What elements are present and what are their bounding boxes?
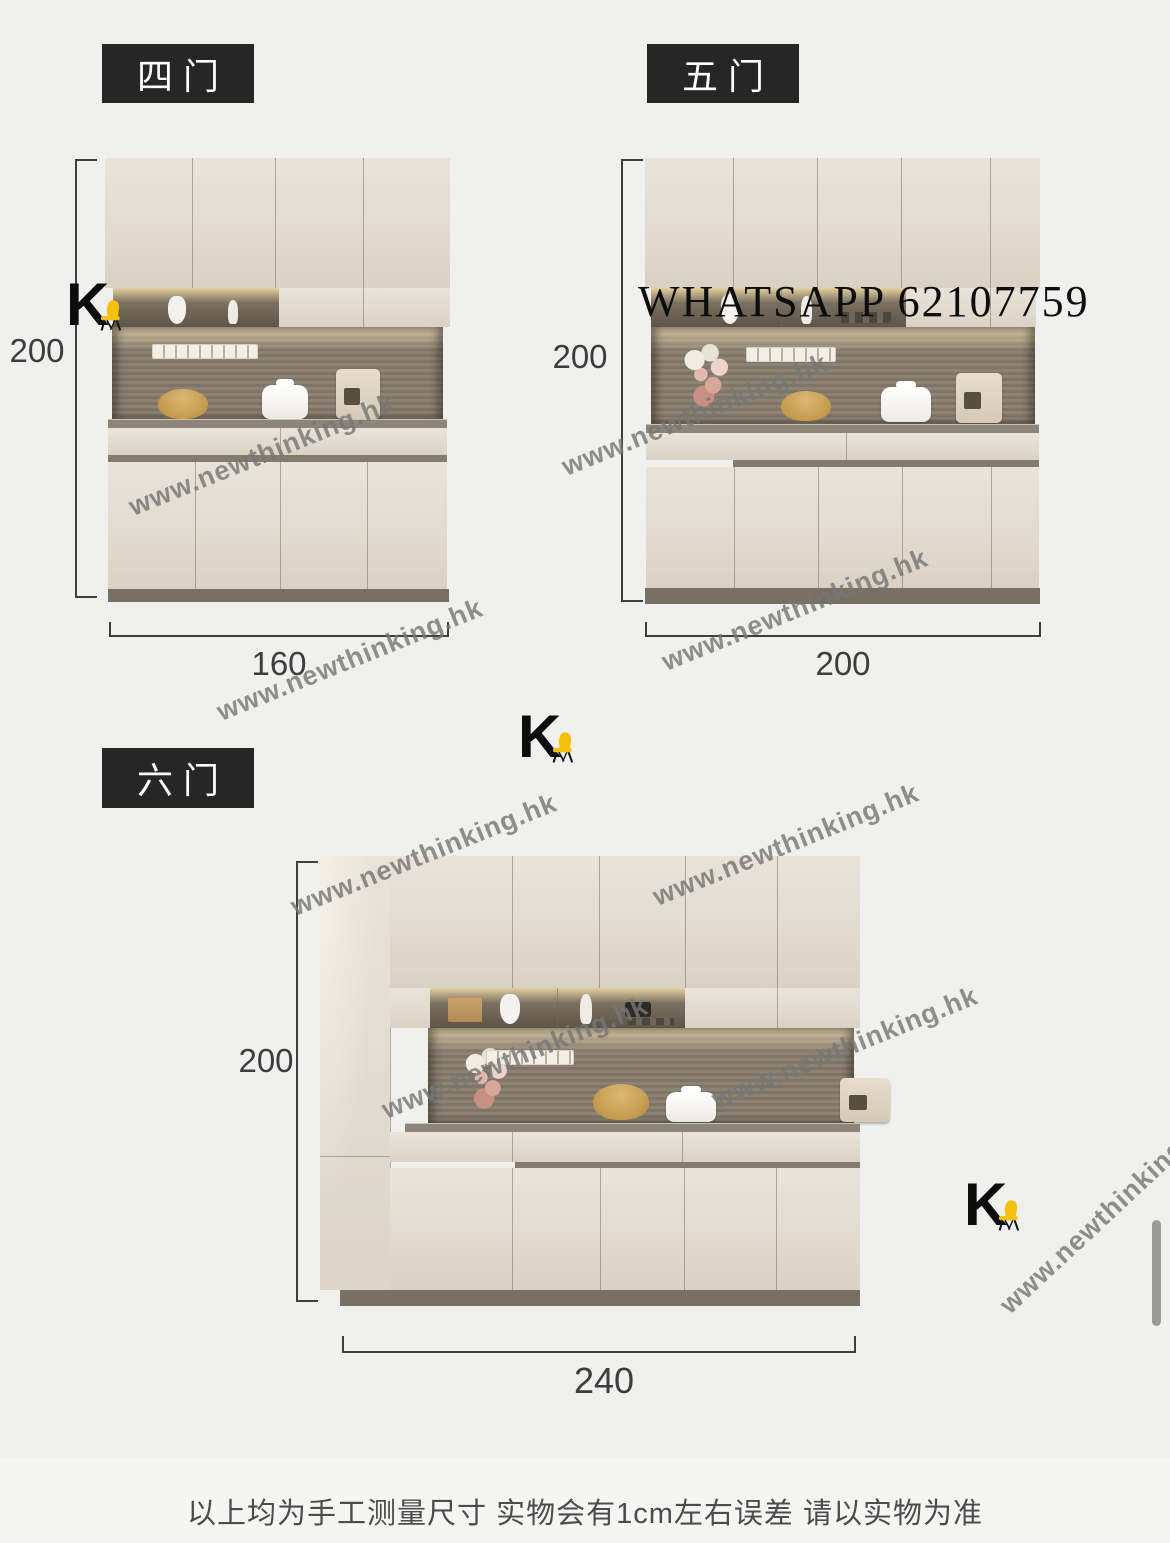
cabinet-door: [685, 988, 860, 1028]
decor-coffee-machine: [956, 373, 1002, 423]
decor-pot: [666, 1092, 716, 1122]
plinth: [108, 589, 449, 602]
brand-logo: K: [964, 1178, 1022, 1230]
door-divider: [512, 1132, 513, 1162]
brand-logo: K: [518, 710, 576, 762]
chair-icon: [92, 298, 128, 334]
width-dimension-line: [342, 1336, 856, 1353]
decor-basket: [593, 1084, 649, 1120]
door-divider: [733, 158, 734, 288]
decor-basket: [158, 389, 208, 419]
door-divider: [990, 158, 991, 288]
product-photo-four-door: [105, 158, 450, 602]
cabinet-top-doors: [645, 158, 1040, 288]
drawer-band: [646, 433, 1039, 460]
disclaimer-text: 以上均为手工测量尺寸 实物会有1cm左右误差 请以实物为准: [0, 1490, 1170, 1532]
door-divider: [734, 467, 735, 588]
decor-pot: [262, 385, 308, 419]
height-dimension-line: [75, 159, 97, 598]
door-divider: [367, 462, 368, 589]
height-dimension-value: 200: [548, 338, 612, 376]
door-divider: [818, 467, 819, 588]
width-dimension-value: 240: [549, 1360, 659, 1402]
drawer-band: [390, 1132, 860, 1162]
chair-icon: [544, 730, 580, 766]
door-divider: [817, 158, 818, 288]
cabinet-door: [390, 988, 430, 1028]
door-divider: [777, 988, 778, 1028]
door-divider: [599, 856, 600, 988]
decor-vase: [500, 994, 520, 1024]
cabinet-door: [279, 288, 450, 327]
decor-box: [448, 998, 482, 1022]
cabinet-bottom-doors: [646, 467, 1039, 588]
decor-vase: [168, 296, 186, 324]
door-divider: [280, 462, 281, 589]
door-divider: [776, 1168, 777, 1290]
section-label-four-door: 四门: [102, 44, 254, 103]
door-divider: [600, 1168, 601, 1290]
product-photo-five-door: [645, 158, 1040, 604]
door-divider: [363, 158, 364, 288]
section-label-five-door: 五门: [647, 44, 799, 103]
door-divider: [901, 158, 902, 288]
chair-icon: [990, 1198, 1026, 1234]
height-dimension-line: [296, 861, 318, 1302]
whatsapp-overlay-text: WHATSAPP 62107759: [638, 276, 1090, 327]
door-divider: [991, 467, 992, 588]
decor-coffee-machine: [840, 1078, 890, 1122]
cabinet-bottom-doors: [390, 1168, 860, 1290]
cabinet-top-doors: [105, 158, 450, 288]
decor-basket: [781, 391, 831, 421]
tall-side-cabinet: [320, 856, 390, 1290]
height-dimension-value: 200: [6, 332, 68, 370]
door-divider: [512, 1168, 513, 1290]
decor-figurine: [228, 300, 238, 324]
section-label-text: 四门: [137, 48, 229, 100]
section-label-text: 五门: [682, 48, 774, 100]
door-divider: [320, 1156, 390, 1157]
decor-pot: [881, 387, 931, 422]
door-divider: [846, 433, 847, 460]
door-divider: [684, 1168, 685, 1290]
scrollbar-thumb[interactable]: [1152, 1220, 1161, 1326]
door-divider: [363, 288, 364, 327]
height-dimension-value: 200: [234, 1042, 298, 1080]
width-dimension-value: 200: [793, 645, 893, 683]
door-divider: [777, 856, 778, 988]
decor-hook-rail: [152, 344, 258, 359]
door-divider: [512, 856, 513, 988]
display-niche: [113, 288, 279, 327]
section-label-six-door: 六门: [102, 748, 254, 808]
brand-logo: K: [66, 278, 124, 330]
niche-divider: [557, 988, 558, 1028]
section-label-text: 六门: [137, 752, 229, 804]
door-divider: [275, 158, 276, 288]
door-divider: [192, 158, 193, 288]
plinth: [340, 1290, 860, 1306]
cabinet-top-doors: [390, 856, 860, 988]
door-divider: [682, 1132, 683, 1162]
height-dimension-line: [621, 159, 643, 602]
